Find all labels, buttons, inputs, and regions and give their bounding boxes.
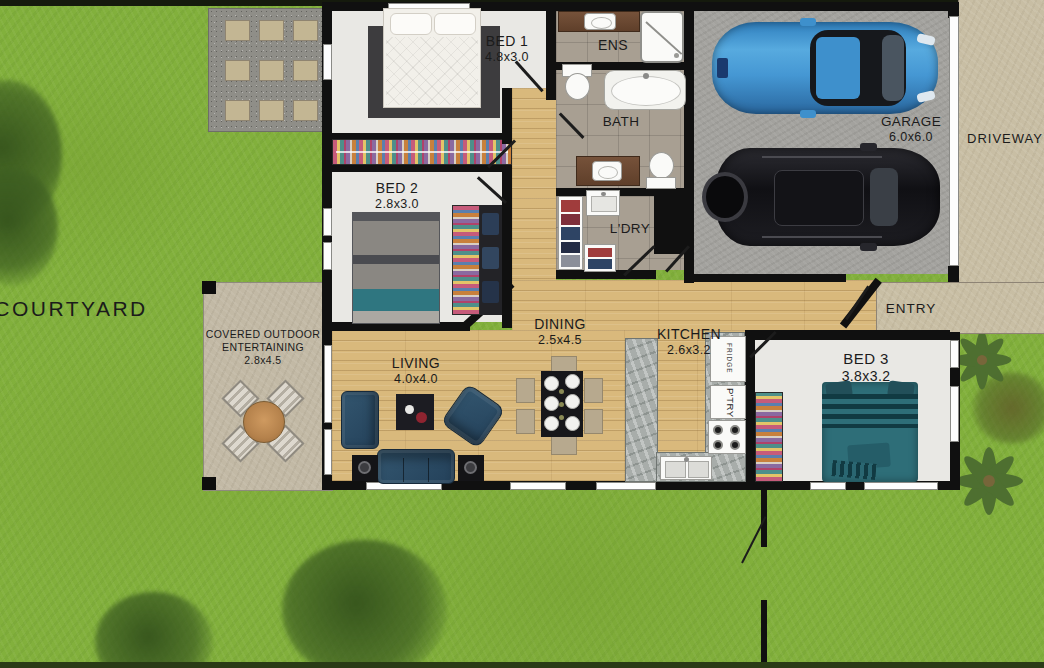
rug-accent-white	[405, 405, 414, 414]
pantry: P'TRY	[710, 385, 746, 419]
label-ens: ENS	[598, 37, 628, 54]
sink-basin	[665, 461, 686, 478]
car-black-windshield	[870, 168, 898, 226]
label-living-dims: 4.0x4.0	[392, 372, 440, 387]
stepping-stone	[293, 60, 318, 81]
label-ldry: L'DRY	[610, 221, 650, 237]
shower-drain	[674, 53, 679, 58]
burner	[713, 440, 723, 450]
bed3-wardrobe-clothes	[755, 392, 783, 482]
dining-chair	[584, 378, 603, 403]
car-blue-plate	[717, 58, 728, 78]
label-bath: BATH	[603, 114, 640, 130]
bed2-teal-band	[353, 289, 439, 311]
tree-bottom-small	[95, 592, 213, 668]
centerpiece	[559, 389, 564, 394]
bed2-foot	[353, 311, 439, 323]
laundry-tub	[586, 190, 620, 216]
label-driveway: DRIVEWAY	[967, 131, 1043, 147]
window-bed1-west	[323, 44, 332, 80]
label-living: LIVING 4.0x4.0	[392, 355, 440, 387]
folded-linen	[561, 227, 580, 240]
stepping-stone	[225, 60, 250, 81]
laundry-cabinet	[584, 244, 616, 272]
plate	[565, 416, 580, 431]
palm-tree-bottom	[952, 444, 1026, 518]
toilet-bowl	[649, 152, 674, 179]
tree-bottom-large	[282, 540, 447, 668]
dining-table	[541, 371, 583, 437]
stepping-stone	[225, 20, 250, 41]
basin-bowl	[591, 17, 612, 29]
label-bed3-dims: 3.8x3.2	[842, 368, 891, 385]
dining-chair	[516, 409, 535, 434]
bed2-duvet-band	[353, 255, 439, 264]
rug-accent-red	[416, 412, 427, 423]
plate	[544, 416, 559, 431]
basin-bowl	[598, 166, 618, 179]
bed1-pillow	[434, 13, 476, 35]
folded-clothes	[482, 281, 499, 303]
label-bed2-dims: 2.8x3.0	[375, 197, 419, 212]
label-living-name: LIVING	[392, 355, 440, 372]
linen-closet	[558, 196, 583, 270]
plate	[565, 394, 580, 409]
label-dining: DINING 2.5x4.5	[534, 316, 585, 348]
wall-laundry-east	[654, 196, 684, 254]
toilet-tank	[646, 177, 676, 189]
car-black	[702, 146, 940, 248]
door-living-west-b	[324, 429, 332, 475]
label-bed1: BED 1 4.8x3.0	[485, 33, 529, 65]
side-table-speaker	[358, 461, 371, 474]
bathtub-basin	[611, 76, 681, 106]
sink-faucet	[684, 457, 689, 462]
sofa-cushion-line	[428, 458, 429, 482]
label-bed1-dims: 4.8x3.0	[485, 50, 529, 65]
label-entry: ENTRY	[886, 301, 937, 317]
wall-wardrobe-top	[332, 133, 512, 139]
folded-linen	[588, 248, 612, 257]
burner	[713, 425, 723, 435]
ens-shower	[640, 11, 684, 63]
bed1-bed	[383, 8, 481, 108]
bed2-headboard	[353, 213, 439, 221]
wardrobe-rail	[336, 151, 508, 153]
wall-bed1-east	[546, 2, 556, 100]
stepping-stone	[225, 100, 250, 121]
label-bed2-name: BED 2	[375, 180, 419, 197]
label-garage: GARAGE 6.0x6.0	[881, 114, 941, 146]
laundry-tap	[601, 192, 606, 196]
side-table	[458, 455, 484, 481]
bath-toilet	[646, 152, 676, 188]
bed2-wardrobe-shelf	[480, 205, 502, 315]
covered-outdoor-surface	[203, 282, 333, 491]
folded-linen	[588, 259, 612, 269]
bed1-quilt	[386, 37, 478, 105]
fence-lower	[761, 600, 767, 662]
label-dining-name: DINING	[534, 316, 585, 333]
window-kitchen-south	[596, 482, 656, 490]
sofa-bottom	[377, 449, 455, 484]
plate	[565, 374, 580, 389]
label-outdoor-dims: 2.8x4.5	[206, 354, 321, 367]
folded-linen	[561, 242, 580, 253]
wall-bath-laundry-divider	[556, 188, 684, 196]
cooktop	[708, 420, 746, 454]
burner	[730, 425, 740, 435]
garage-door	[949, 16, 959, 266]
bed2-bed	[352, 212, 440, 324]
bed3-bed	[822, 382, 918, 482]
kitchen-island	[625, 338, 658, 482]
shower-glass	[645, 21, 682, 55]
wall-garage-west	[684, 2, 694, 283]
veranda-post	[202, 477, 216, 490]
window-bed2-west-a	[323, 208, 332, 236]
wall-garage-south	[684, 274, 846, 282]
bathtub	[604, 70, 686, 110]
label-kitchen-dims: 2.6x3.2	[657, 343, 721, 358]
centerpiece	[559, 415, 564, 420]
kitchen-sink	[660, 456, 712, 480]
window-bed3-south-b	[864, 482, 938, 490]
sofa-left	[341, 391, 379, 449]
folded-clothes	[482, 247, 499, 269]
car-black-roofrail	[762, 156, 882, 158]
wall-bed2-east	[502, 168, 512, 328]
door-living-west-a	[324, 345, 332, 423]
living-rug	[396, 394, 434, 430]
window-bed3-south-a	[810, 482, 846, 490]
label-bed2: BED 2 2.8x3.0	[375, 180, 419, 212]
label-bed3-name: BED 3	[842, 350, 891, 368]
side-table	[352, 455, 378, 481]
floor-plan-scene: FRIDGE P'TRY	[0, 0, 1044, 668]
car-black-roofrail	[762, 236, 882, 238]
stepping-stone	[293, 20, 318, 41]
burner	[730, 440, 740, 450]
label-outdoor-line1: COVERED OUTDOOR	[206, 328, 321, 341]
car-blue-roof	[816, 37, 860, 99]
folded-linen	[561, 255, 580, 267]
bed1-pillow	[390, 13, 432, 35]
car-black-mirror	[860, 143, 877, 151]
centerpiece	[559, 402, 564, 407]
bed3-striped-blanket	[822, 394, 918, 428]
car-blue-mirror	[800, 18, 816, 26]
dining-chair	[584, 409, 603, 434]
car-blue-windshield	[882, 35, 904, 101]
wall-garage-east-stub-bottom	[948, 266, 959, 282]
bed2-wardrobe-clothes	[452, 205, 480, 315]
stepping-stone	[293, 100, 318, 121]
window-bed2-west-b	[323, 242, 332, 270]
car-blue-mirror	[800, 110, 816, 118]
bathtub-faucet	[643, 73, 649, 79]
bed3-throw-striped	[831, 460, 876, 480]
folded-linen	[561, 214, 580, 225]
label-outdoor: COVERED OUTDOOR ENTERTAINING 2.8x4.5	[206, 328, 321, 367]
car-black-sunroof	[774, 170, 864, 226]
stepping-stone	[259, 60, 284, 81]
folded-clothes	[482, 213, 499, 235]
plate	[544, 396, 559, 411]
toilet-bowl	[565, 73, 590, 100]
ens-basin	[584, 13, 616, 30]
dining-chair	[551, 436, 577, 455]
window-bed3-east-a	[950, 340, 959, 368]
outdoor-table	[243, 401, 285, 443]
folded-linen	[561, 200, 580, 212]
sofa-cushion-line	[403, 458, 404, 482]
car-black-spare-wheel	[702, 172, 748, 222]
fridge-label: FRIDGE	[725, 343, 733, 374]
side-table-speaker	[464, 461, 477, 474]
window-bed3-east-b	[950, 386, 959, 442]
sink-basin	[688, 461, 709, 478]
label-dining-dims: 2.5x4.5	[534, 333, 585, 348]
bath-basin	[592, 161, 622, 181]
dining-chair	[516, 378, 535, 403]
label-bed1-name: BED 1	[485, 33, 529, 50]
veranda-post	[202, 281, 216, 294]
ens-toilet	[562, 64, 592, 100]
label-outdoor-line2: ENTERTAINING	[206, 341, 321, 354]
label-garage-dims: 6.0x6.0	[881, 130, 941, 145]
stepping-stone	[259, 20, 284, 41]
window-dining-south	[510, 482, 566, 490]
plate	[544, 376, 559, 391]
wall-wardrobe-bottom	[332, 165, 512, 172]
pantry-label: P'TRY	[724, 388, 736, 417]
laundry-basin	[591, 196, 617, 212]
site-border-bottom	[0, 662, 1044, 668]
label-kitchen: KITCHEN 2.6x3.2	[657, 326, 721, 358]
car-blue	[712, 22, 938, 114]
label-garage-name: GARAGE	[881, 114, 941, 130]
stepping-stone	[259, 100, 284, 121]
label-bed3: BED 3 3.8x3.2	[842, 350, 891, 385]
car-black-mirror	[860, 243, 877, 251]
label-courtyard: COURTYARD	[0, 296, 148, 322]
label-kitchen-name: KITCHEN	[657, 326, 721, 343]
